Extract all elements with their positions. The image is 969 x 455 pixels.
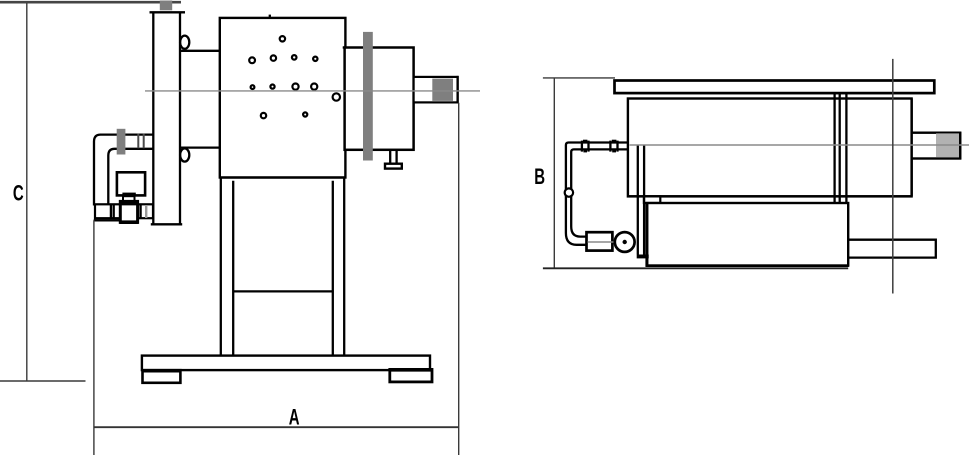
svg-text:B: B [534, 164, 545, 189]
svg-text:A: A [289, 404, 300, 429]
svg-text:C: C [13, 181, 24, 206]
